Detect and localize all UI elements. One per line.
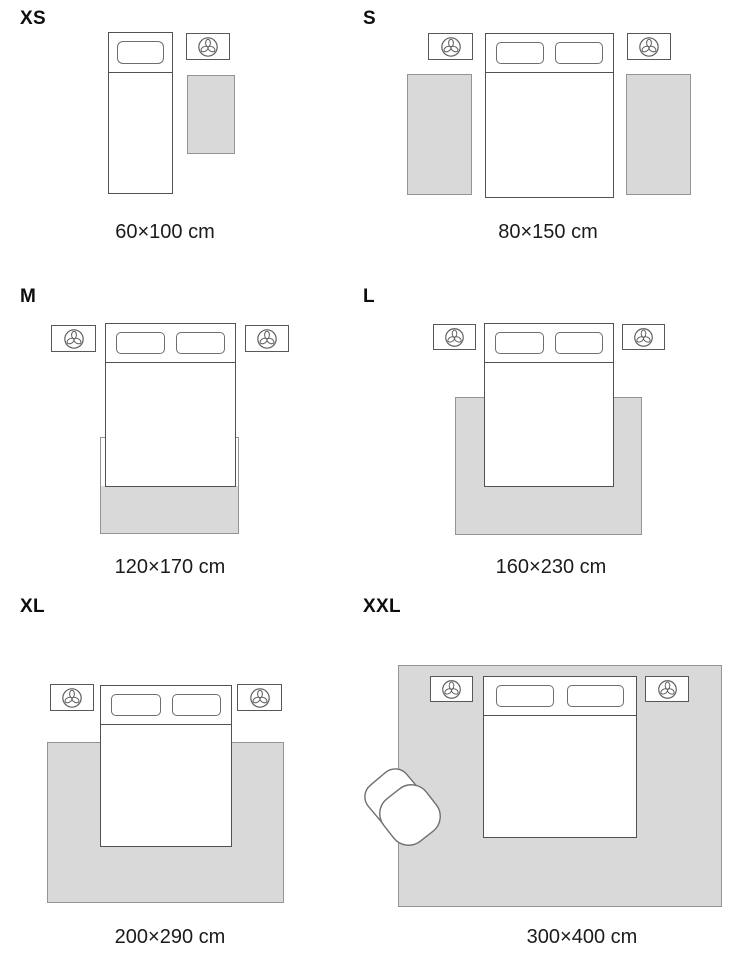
armchair <box>364 766 446 857</box>
pillow <box>496 685 554 707</box>
nightstand <box>237 684 282 711</box>
double-bed <box>105 323 236 487</box>
single-bed <box>108 32 173 194</box>
plant-icon <box>249 687 271 709</box>
rug-s-left <box>407 74 472 195</box>
nightstand <box>430 676 473 702</box>
double-bed <box>483 676 637 838</box>
bed-headboard <box>109 33 172 73</box>
bed-headboard <box>485 324 613 363</box>
dimensions-m: 120×170 cm <box>50 556 290 579</box>
size-label-xxl: XXL <box>363 596 401 618</box>
plant-icon <box>256 328 278 350</box>
pillow <box>567 685 625 707</box>
pillow <box>116 332 165 354</box>
pillow <box>555 42 603 64</box>
plant-icon <box>440 36 462 58</box>
pillow <box>496 42 544 64</box>
size-label-s: S <box>363 8 376 30</box>
nightstand <box>51 325 96 352</box>
pillow <box>111 694 161 716</box>
bed-headboard <box>486 34 613 73</box>
plant-icon <box>61 687 83 709</box>
bed-headboard <box>106 324 235 363</box>
plant-icon <box>441 679 462 700</box>
nightstand <box>622 324 665 350</box>
nightstand <box>186 33 230 60</box>
rug-size-guide: XS 60×100 cm S 80×150 cm M <box>0 0 740 960</box>
plant-icon <box>444 327 465 348</box>
rug-xs <box>187 75 235 154</box>
nightstand <box>627 33 671 60</box>
nightstand <box>645 676 689 702</box>
size-label-l: L <box>363 286 375 308</box>
nightstand <box>428 33 473 60</box>
bed-headboard <box>101 686 231 725</box>
size-label-xl: XL <box>20 596 45 618</box>
dimensions-xs: 60×100 cm <box>45 221 285 244</box>
plant-icon <box>638 36 660 58</box>
rug-m-exposed-area <box>101 486 238 533</box>
pillow <box>495 332 544 354</box>
plant-icon <box>197 36 219 58</box>
size-label-xs: XS <box>20 8 46 30</box>
nightstand <box>50 684 94 711</box>
bed-headboard <box>484 677 636 716</box>
nightstand <box>433 324 476 350</box>
dimensions-s: 80×150 cm <box>428 221 668 244</box>
dimensions-l: 160×230 cm <box>431 556 671 579</box>
pillow <box>555 332 604 354</box>
size-label-m: M <box>20 286 36 308</box>
pillow <box>117 41 164 64</box>
dimensions-xxl: 300×400 cm <box>462 926 702 949</box>
plant-icon <box>657 679 678 700</box>
double-bed <box>484 323 614 487</box>
double-bed <box>100 685 232 847</box>
plant-icon <box>633 327 654 348</box>
double-bed <box>485 33 614 198</box>
nightstand <box>245 325 289 352</box>
rug-s-right <box>626 74 691 195</box>
dimensions-xl: 200×290 cm <box>50 926 290 949</box>
pillow <box>172 694 222 716</box>
plant-icon <box>63 328 85 350</box>
pillow <box>176 332 225 354</box>
